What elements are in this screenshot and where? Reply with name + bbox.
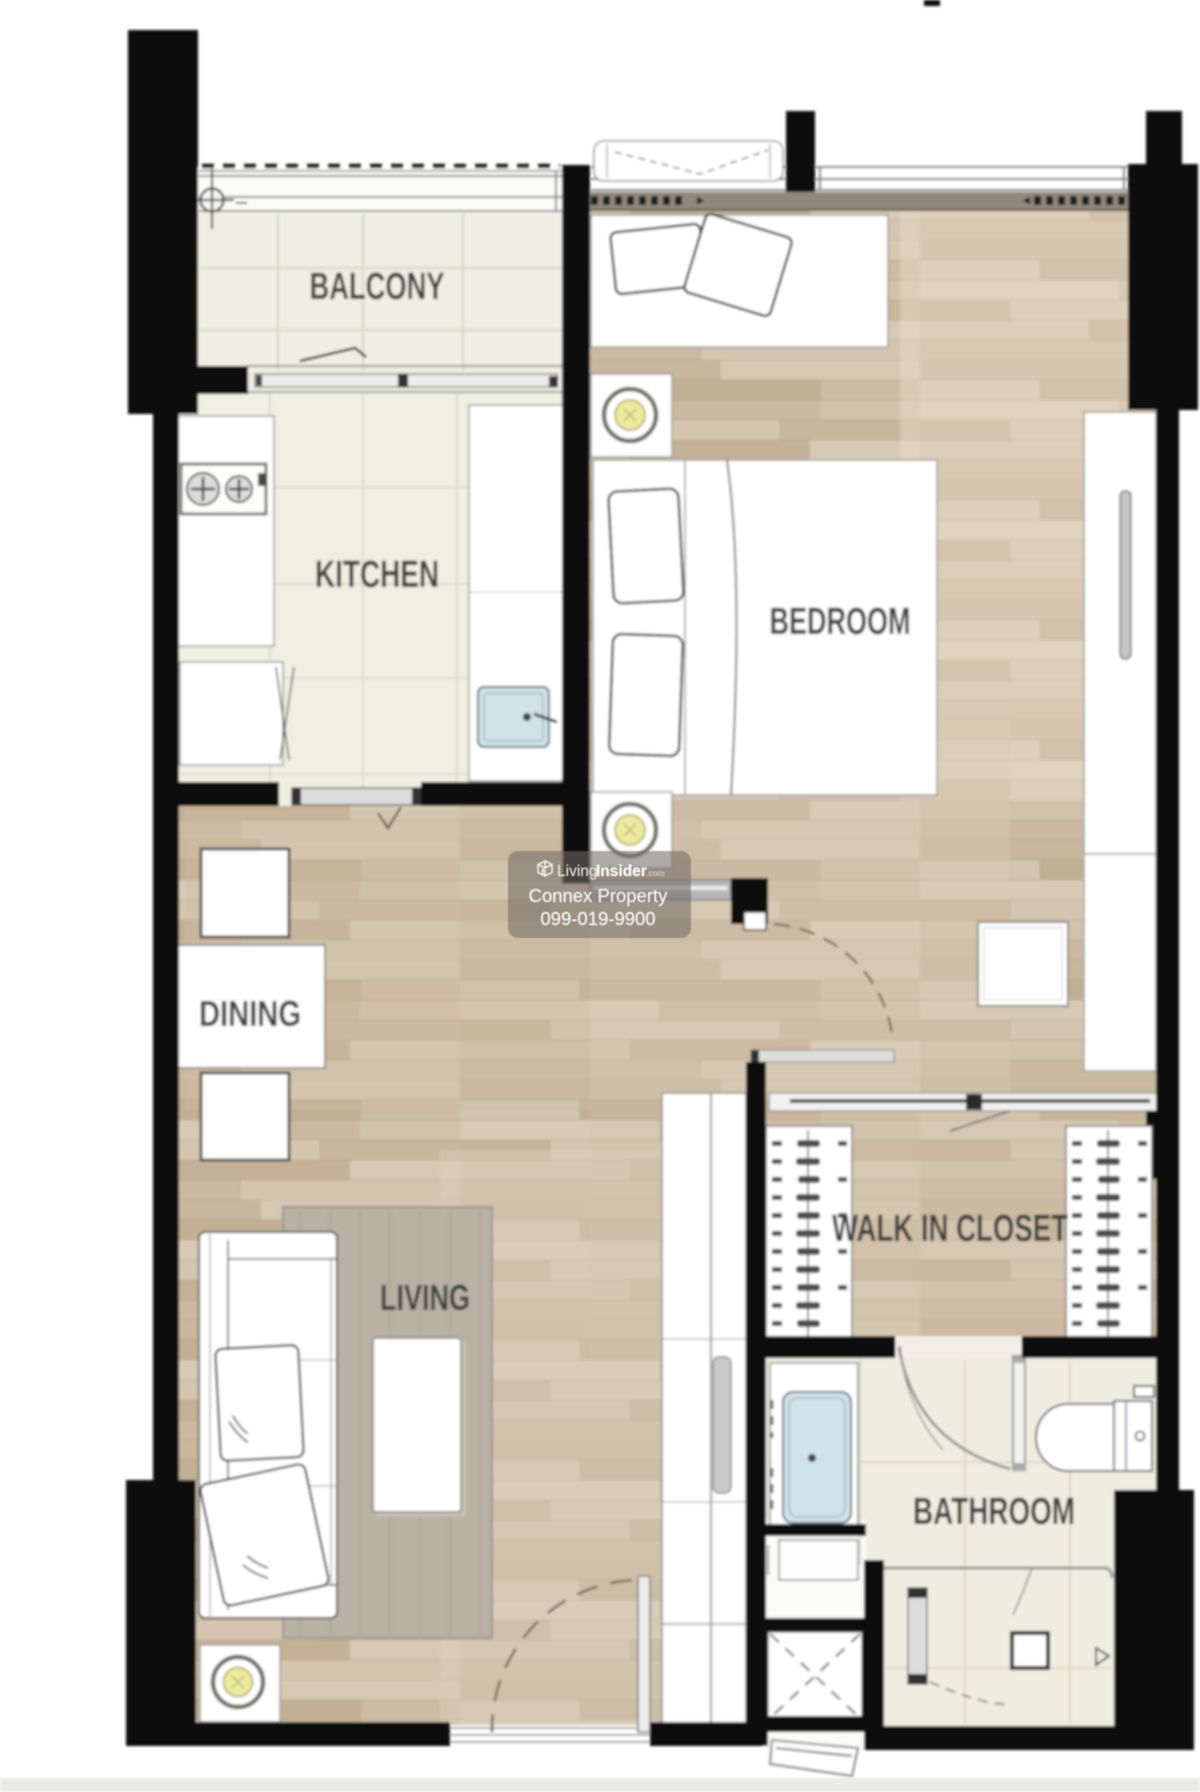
svg-text:.com: .com <box>646 868 664 878</box>
svg-text:WALK IN CLOSET: WALK IN CLOSET <box>832 1208 1068 1250</box>
svg-text:Living: Living <box>557 863 598 880</box>
svg-text:BATHROOM: BATHROOM <box>913 1491 1075 1533</box>
svg-text:Insider: Insider <box>596 863 647 880</box>
svg-text:LIVING: LIVING <box>380 1277 470 1318</box>
svg-text:BEDROOM: BEDROOM <box>770 601 911 643</box>
svg-text:099-019-9900: 099-019-9900 <box>540 908 655 929</box>
svg-text:Connex Property: Connex Property <box>529 885 669 906</box>
svg-text:BALCONY: BALCONY <box>310 266 445 308</box>
svg-text:KITCHEN: KITCHEN <box>315 554 439 596</box>
svg-text:DINING: DINING <box>199 993 301 1034</box>
